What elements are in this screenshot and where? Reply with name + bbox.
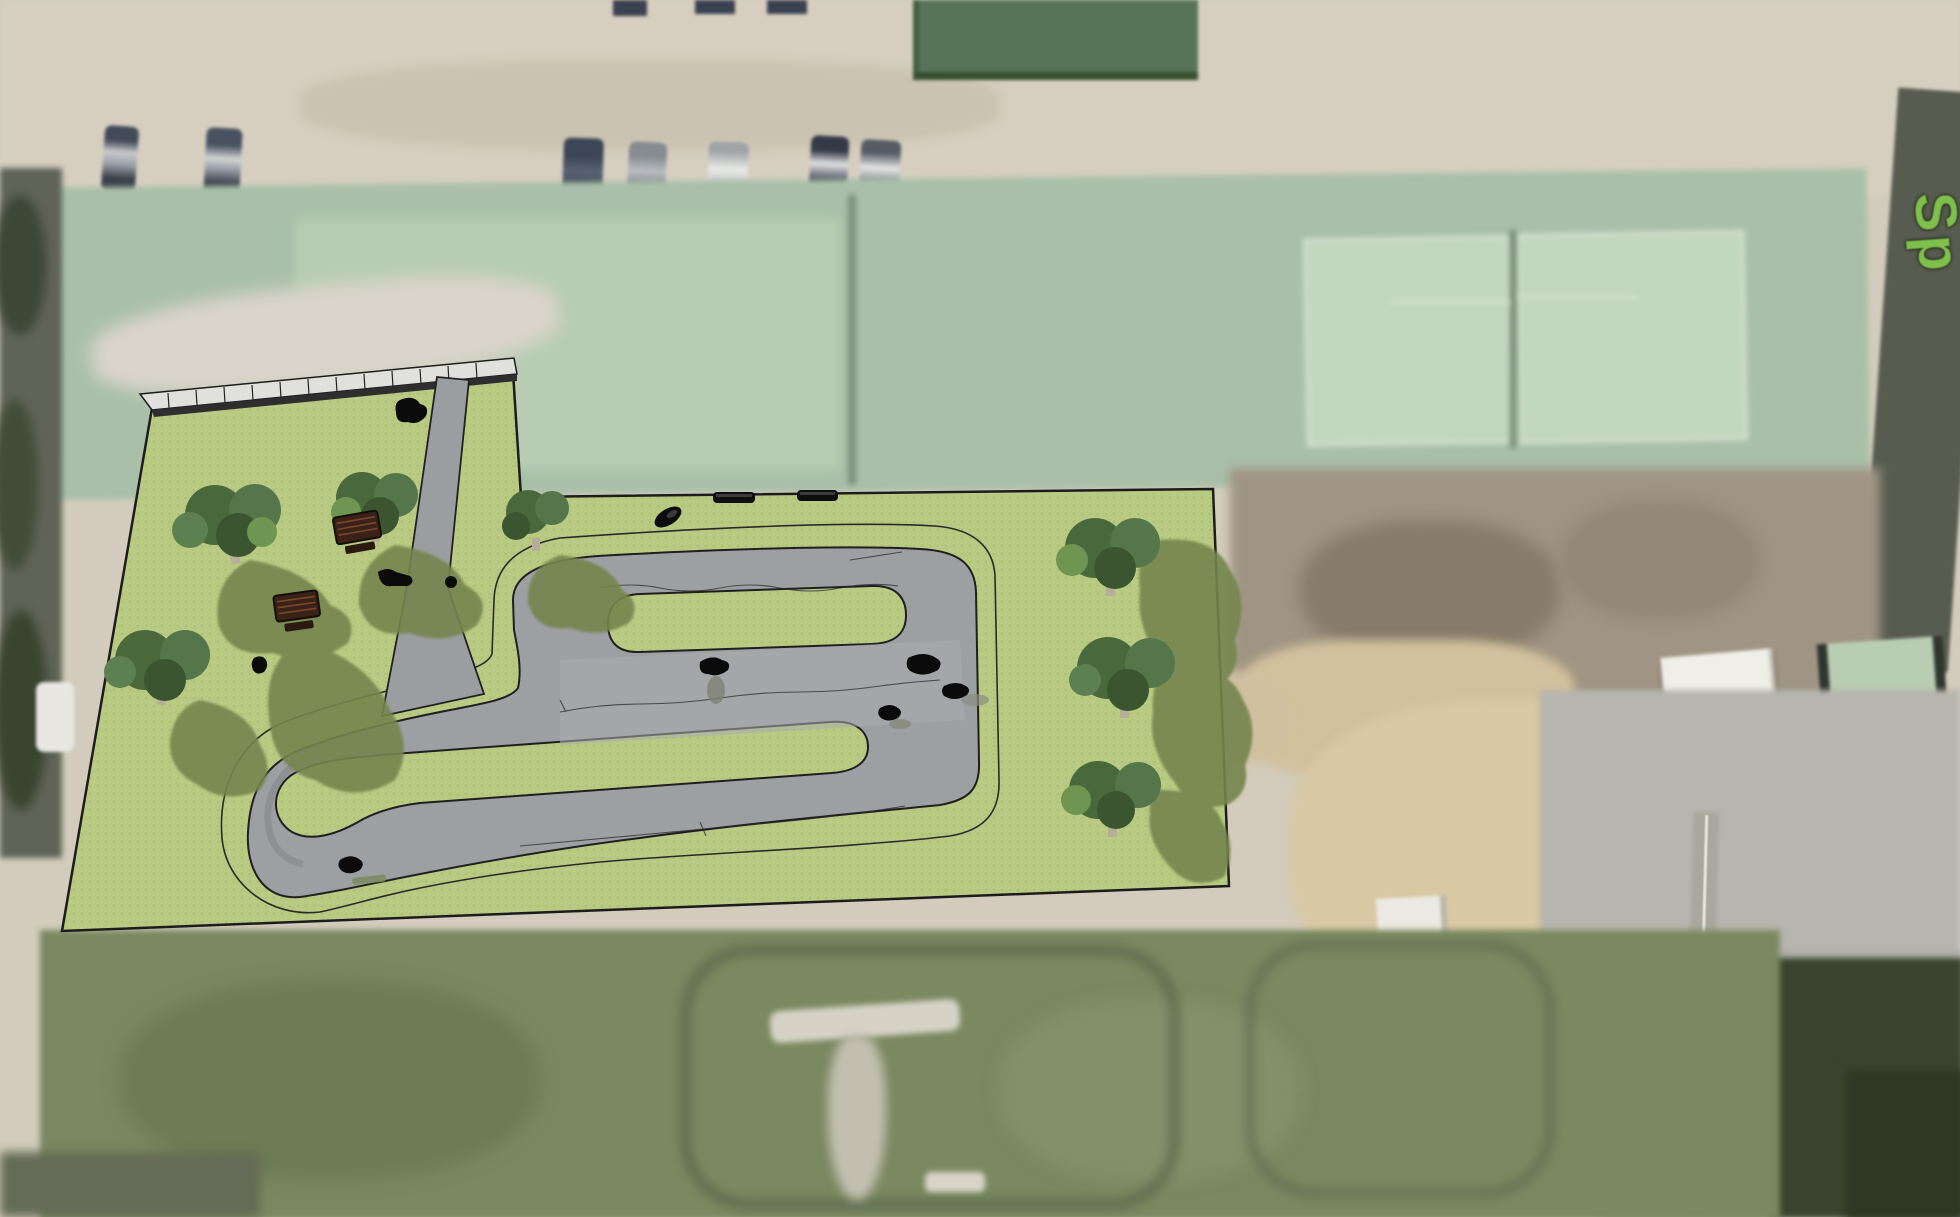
- pavement: [1600, 950, 1960, 1217]
- scrub-ground: [1230, 468, 1880, 738]
- pump-track: [248, 547, 979, 897]
- tree: [104, 630, 210, 706]
- tennis-court-west: [295, 218, 840, 470]
- dark-roof-building: [913, 0, 1198, 80]
- street-tree: [0, 195, 46, 335]
- street-east: [1858, 88, 1960, 673]
- hedge: [1768, 958, 1960, 1217]
- field-goal-worn-bar: [769, 998, 961, 1043]
- field-worn-loop: [1245, 940, 1555, 1198]
- track-plaza-highlight: [560, 640, 965, 745]
- rider-figure: [878, 705, 901, 721]
- sports-field: [40, 930, 1780, 1217]
- tennis-courts-band: [50, 169, 1869, 500]
- access-walkway: [382, 377, 484, 716]
- sand-area: [960, 660, 1290, 780]
- trees: [104, 472, 1175, 837]
- boundary-fence: [140, 358, 517, 417]
- bench: [713, 492, 755, 503]
- picnic-table: [273, 590, 322, 633]
- track-grading-outline: [221, 524, 999, 912]
- white-roof-building: [1660, 648, 1777, 722]
- tennis-court-service-line: [1518, 295, 1638, 299]
- parked-car: [627, 141, 668, 201]
- sand-area: [1235, 640, 1575, 780]
- road-bottom-left: [0, 1152, 260, 1217]
- field-worn-loop: [680, 945, 1180, 1210]
- rider-figure: [700, 657, 729, 675]
- pavement: [1540, 690, 1960, 1030]
- overlay-lawn: [62, 372, 1229, 931]
- pedestrian-figure: [445, 576, 457, 588]
- tree: [172, 484, 281, 565]
- riders-pair-figure: [378, 569, 413, 586]
- track-roller-lines: [520, 552, 940, 846]
- hedge-dark: [1845, 1070, 1960, 1217]
- rooftop-vent: [613, 0, 647, 16]
- white-van: [36, 682, 74, 752]
- tree-shadows: [170, 539, 1253, 883]
- field-goalmouth-worn: [828, 1035, 886, 1200]
- scrub-dark-patch: [1300, 520, 1560, 660]
- tree: [1069, 637, 1175, 718]
- tree: [1061, 761, 1161, 837]
- parked-car: [101, 125, 140, 193]
- tennis-court-east: [1303, 235, 1515, 447]
- parked-car: [707, 141, 749, 202]
- tennis-net-line-west: [848, 195, 856, 485]
- parked-car: [562, 137, 604, 200]
- green-roof-court: [1817, 636, 1950, 743]
- tree: [1056, 518, 1160, 596]
- figure-shadow: [707, 676, 725, 704]
- rider-figure: [942, 683, 969, 699]
- street-tree: [0, 610, 48, 810]
- white-shed: [1376, 895, 1450, 979]
- street-west: [0, 168, 62, 858]
- tree: [331, 472, 418, 542]
- pedestrian-figure: [252, 656, 267, 673]
- field-mottle: [120, 980, 540, 1180]
- street-tree: [0, 400, 38, 570]
- concept-overlay: [0, 0, 1960, 1217]
- rooftop-vent: [767, 0, 807, 14]
- scrub-dark-patch: [1560, 500, 1760, 620]
- hairpin-berm-shading: [268, 758, 305, 864]
- parked-car: [859, 139, 902, 199]
- people-group-figure: [396, 398, 428, 423]
- tennis-net-line-east: [1510, 230, 1516, 448]
- map-street-label: Sp: [1901, 190, 1960, 277]
- rooftop-vent: [695, 0, 735, 14]
- field-goal-small: [925, 1172, 985, 1192]
- parked-vehicle-figure: [651, 502, 685, 531]
- footpath-edge-line: [1695, 815, 1708, 1215]
- rider-figure: [907, 654, 941, 675]
- figure-shadow: [889, 719, 911, 729]
- figures: [252, 398, 989, 885]
- rider-figure: [338, 856, 362, 873]
- tennis-court-service-line: [1390, 300, 1510, 304]
- bench: [797, 490, 838, 501]
- parking-lot-shade: [300, 60, 1000, 150]
- parking-lot: [0, 0, 1960, 196]
- background-footpath-blur: [86, 261, 564, 410]
- parked-car: [203, 127, 243, 197]
- sand-area: [1290, 700, 1770, 1000]
- tree: [502, 490, 569, 551]
- aerial-map-canvas[interactable]: Sp: [0, 0, 1960, 1217]
- picnic-table: [333, 510, 384, 555]
- figure-shadow: [961, 694, 989, 706]
- field-mottle: [1000, 1000, 1300, 1180]
- tennis-court-east: [1516, 230, 1748, 444]
- parked-car: [809, 135, 850, 195]
- figure-shadow: [352, 874, 387, 885]
